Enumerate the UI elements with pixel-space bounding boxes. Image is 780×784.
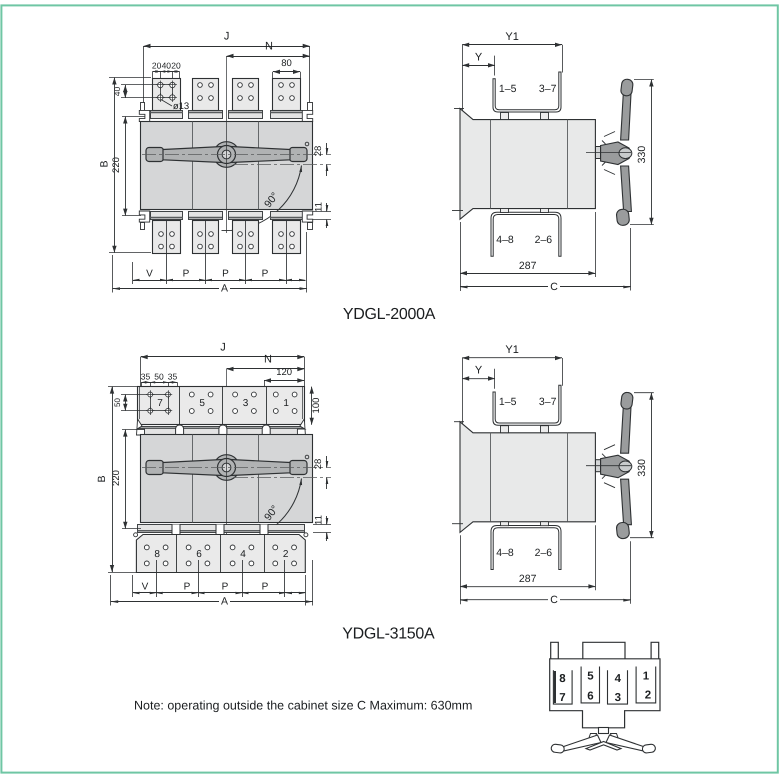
svg-text:A: A bbox=[221, 596, 228, 608]
svg-text:B: B bbox=[96, 475, 108, 482]
svg-text:1: 1 bbox=[283, 398, 289, 409]
svg-text:4: 4 bbox=[615, 673, 622, 685]
svg-text:J: J bbox=[224, 31, 230, 43]
svg-text:N: N bbox=[265, 41, 273, 53]
svg-text:28: 28 bbox=[313, 146, 324, 157]
svg-text:5: 5 bbox=[587, 671, 594, 683]
svg-text:C: C bbox=[550, 281, 558, 293]
svg-text:40: 40 bbox=[112, 87, 122, 97]
svg-text:1–5: 1–5 bbox=[499, 83, 517, 95]
svg-text:2–6: 2–6 bbox=[535, 234, 553, 246]
svg-text:V: V bbox=[146, 269, 153, 280]
svg-text:P: P bbox=[184, 582, 191, 593]
svg-text:50: 50 bbox=[113, 398, 122, 407]
svg-text:7: 7 bbox=[157, 398, 163, 409]
svg-text:N: N bbox=[264, 354, 272, 366]
svg-text:P: P bbox=[222, 582, 229, 593]
svg-text:20: 20 bbox=[171, 61, 181, 71]
svg-text:P: P bbox=[262, 582, 269, 593]
svg-text:7: 7 bbox=[559, 692, 565, 704]
svg-text:6: 6 bbox=[196, 549, 202, 560]
svg-text:A: A bbox=[221, 283, 228, 295]
svg-text:120: 120 bbox=[276, 367, 292, 378]
svg-text:287: 287 bbox=[519, 260, 537, 272]
svg-text:YDGL-2000A: YDGL-2000A bbox=[343, 306, 436, 323]
svg-text:28: 28 bbox=[313, 459, 324, 470]
svg-text:3–7: 3–7 bbox=[539, 83, 557, 95]
svg-text:20: 20 bbox=[152, 61, 162, 71]
svg-text:40: 40 bbox=[162, 61, 172, 71]
svg-text:YDGL-3150A: YDGL-3150A bbox=[342, 626, 435, 643]
svg-text:P: P bbox=[183, 269, 190, 280]
svg-text:3: 3 bbox=[615, 692, 621, 704]
svg-text:5: 5 bbox=[199, 398, 205, 409]
svg-text:100: 100 bbox=[311, 398, 322, 414]
svg-text:3: 3 bbox=[243, 398, 249, 409]
svg-text:J: J bbox=[220, 342, 226, 354]
svg-text:220: 220 bbox=[111, 157, 122, 173]
svg-text:Y1: Y1 bbox=[505, 31, 518, 43]
svg-text:11: 11 bbox=[314, 202, 325, 212]
svg-text:2: 2 bbox=[645, 690, 651, 702]
svg-text:4: 4 bbox=[240, 549, 246, 560]
svg-text:35: 35 bbox=[141, 372, 151, 382]
svg-text:1: 1 bbox=[643, 671, 650, 683]
svg-text:B: B bbox=[99, 160, 111, 167]
svg-text:2: 2 bbox=[283, 549, 289, 560]
svg-text:6: 6 bbox=[587, 691, 593, 703]
svg-text:Note: operating outside the ca: Note: operating outside the cabinet size… bbox=[134, 699, 472, 713]
svg-text:11: 11 bbox=[314, 515, 325, 525]
svg-text:P: P bbox=[222, 269, 229, 280]
svg-text:4–8: 4–8 bbox=[496, 234, 514, 246]
svg-text:80: 80 bbox=[281, 58, 292, 69]
svg-text:V: V bbox=[142, 582, 149, 593]
svg-text:Y: Y bbox=[475, 51, 483, 63]
svg-text:50: 50 bbox=[154, 372, 164, 382]
svg-text:35: 35 bbox=[168, 372, 178, 382]
svg-text:330: 330 bbox=[636, 146, 648, 164]
svg-text:P: P bbox=[262, 269, 269, 280]
svg-text:8: 8 bbox=[559, 673, 566, 685]
svg-text:8: 8 bbox=[154, 549, 160, 560]
